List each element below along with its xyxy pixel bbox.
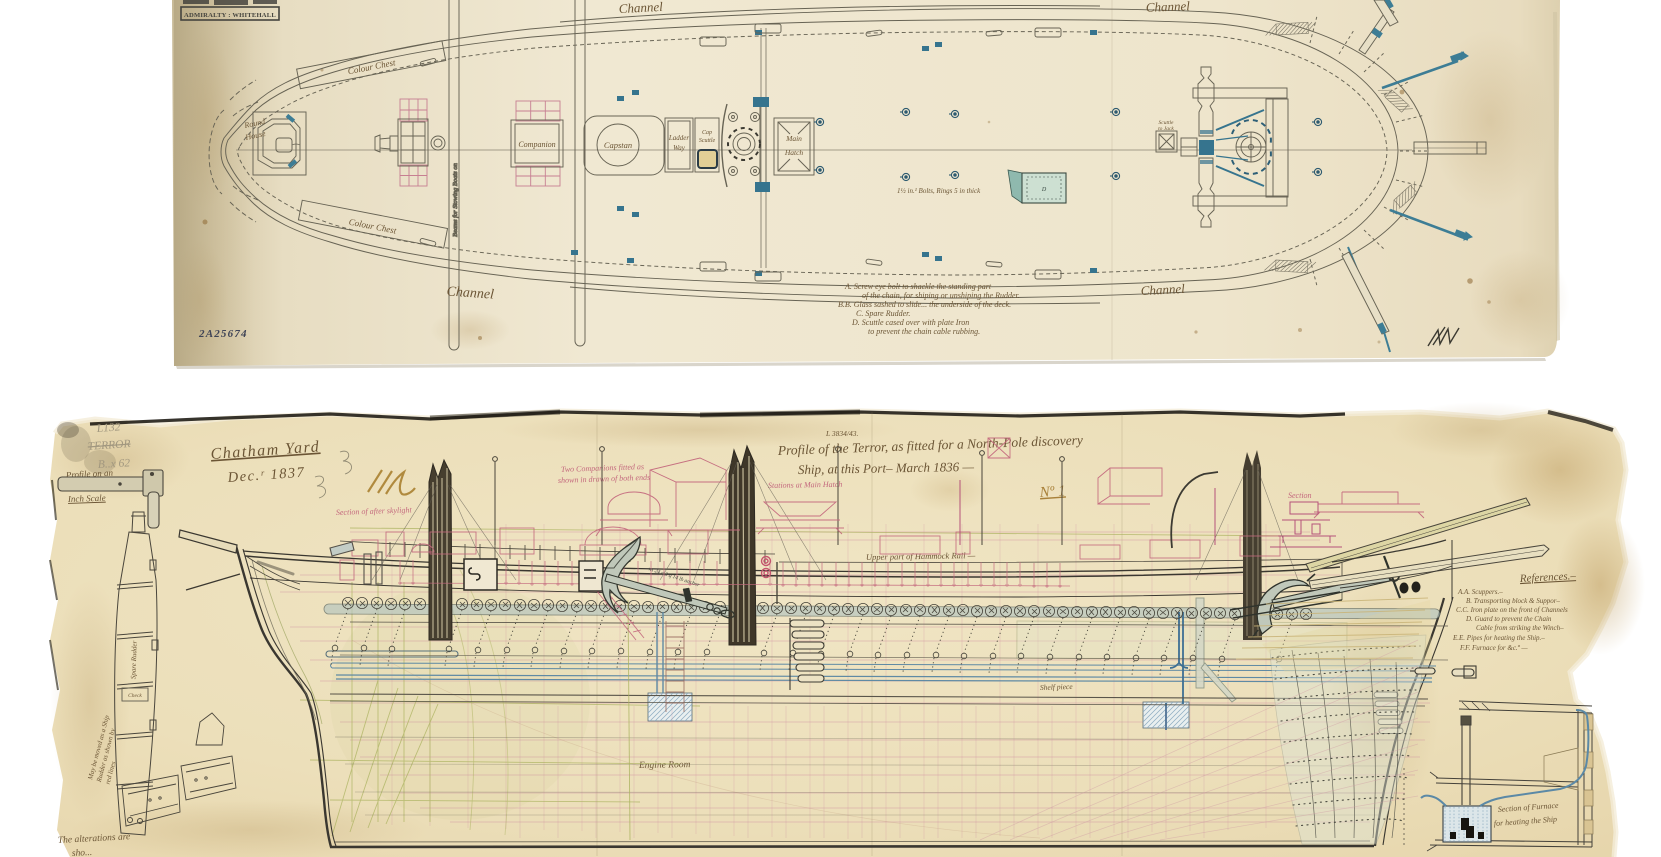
svg-text:Ladder: Ladder	[668, 134, 690, 142]
svg-text:Upper part of Hammock Rail —: Upper part of Hammock Rail —	[866, 550, 976, 562]
svg-text:Engine Room: Engine Room	[638, 760, 691, 771]
svg-text:Shelf piece: Shelf piece	[1040, 682, 1074, 692]
svg-text:Check: Check	[128, 693, 142, 699]
svg-text:D: D	[1041, 187, 1047, 193]
svg-text:C.C. Iron plate on the front: C.C. Iron plate on the front of Channels	[1456, 606, 1568, 614]
svg-text:Scuttle: Scuttle	[699, 138, 716, 144]
svg-text:Ship, at this Port– Marc: Ship, at this Port– March 1836 —	[798, 459, 975, 477]
svg-text:Companion: Companion	[518, 140, 555, 149]
svg-text:Inch Scale: Inch Scale	[67, 493, 106, 504]
svg-text:L132: L132	[95, 421, 121, 435]
svg-text:Section: Section	[1288, 491, 1312, 500]
svg-text:Channel: Channel	[1140, 281, 1185, 298]
svg-text:ADMIRALTY : WHITEHALL: ADMIRALTY : WHITEHALL	[184, 12, 276, 19]
svg-text:Way: Way	[673, 144, 686, 152]
svg-text:Spare Rudder: Spare Rudder	[129, 640, 138, 679]
svg-text:A.A. Scuppers.–: A.A. Scuppers.–	[1457, 588, 1503, 596]
svg-text:Channel: Channel	[1146, 0, 1191, 15]
svg-text:2A25674: 2A25674	[198, 328, 248, 340]
svg-text:E.E. Pipes for heating the Sh: E.E. Pipes for heating the Ship.–	[1452, 634, 1545, 642]
svg-text:Main: Main	[785, 134, 802, 143]
svg-text:B. Transporting block & Suppo: B. Transporting block & Suppor–	[1466, 597, 1560, 605]
svg-text:to Jack: to Jack	[1158, 126, 1174, 132]
svg-text:Cable from striking the Winch–: Cable from striking the Winch–	[1476, 624, 1564, 632]
svg-text:Channel: Channel	[618, 0, 663, 16]
svg-text:Beams for Stowing Boats on: Beams for Stowing Boats on	[452, 163, 459, 237]
svg-text:to prevent the chain cable rub: to prevent the chain cable rubbing.	[868, 327, 980, 336]
svg-text:sho...: sho...	[72, 848, 93, 857]
svg-text:Stations at Main Hatch: Stations at Main Hatch	[768, 480, 843, 490]
svg-text:C. Spare Rudder.: C. Spare Rudder.	[856, 309, 910, 318]
svg-text:of the chain, for shiping or u: of the chain, for shiping or unshiping t…	[862, 291, 1020, 300]
svg-text:D. Scuttle cased over with p: D. Scuttle cased over with plate Iron	[851, 318, 969, 327]
svg-text:D. Guard to prevent the Chain: D. Guard to prevent the Chain	[1465, 615, 1552, 623]
svg-text:Capstan: Capstan	[604, 140, 632, 150]
svg-text:Hatch: Hatch	[784, 148, 804, 157]
svg-text:Cap: Cap	[702, 130, 712, 136]
svg-text:L 3834/43.: L 3834/43.	[825, 429, 858, 438]
svg-text:A. Screw eye bolt to shackle: A. Screw eye bolt to shackle the standin…	[844, 282, 992, 291]
svg-text:F.F. Furnace for &c.ª —: F.F. Furnace for &c.ª —	[1459, 644, 1528, 652]
svg-text:1½ in.¹ Bolts, Rings 5 in thic: 1½ in.¹ Bolts, Rings 5 in thick	[897, 187, 981, 195]
svg-text:B.B. Glass sashed to slide...: B.B. Glass sashed to slide... the unders…	[838, 300, 1011, 309]
